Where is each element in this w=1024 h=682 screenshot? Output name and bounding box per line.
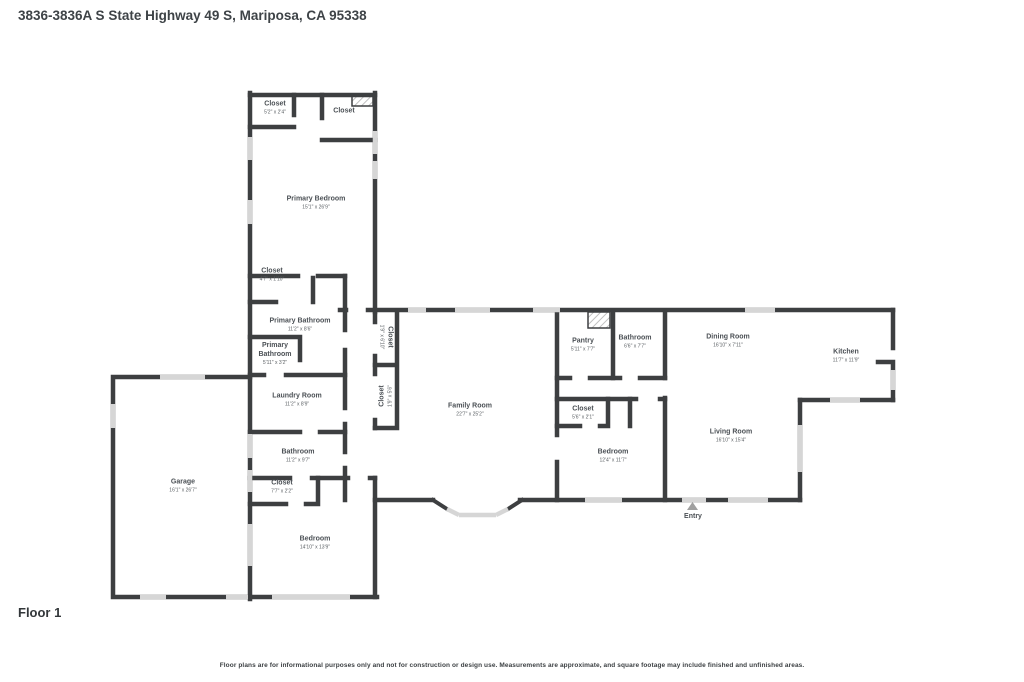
entry-marker-icon <box>687 502 698 510</box>
hatch-area <box>588 312 610 328</box>
hatch-areas <box>352 96 610 328</box>
entry-label: Entry <box>684 513 702 520</box>
floor-label: Floor 1 <box>18 605 61 620</box>
floor-plan-drawing <box>0 0 1024 682</box>
disclaimer-text: Floor plans are for informational purpos… <box>0 662 1024 669</box>
hatch-area <box>352 96 373 106</box>
room-fill-layer <box>113 93 893 599</box>
floor-plan-canvas: Closet 5'2" x 2'4" Closet Primary Bedroo… <box>0 0 1024 682</box>
